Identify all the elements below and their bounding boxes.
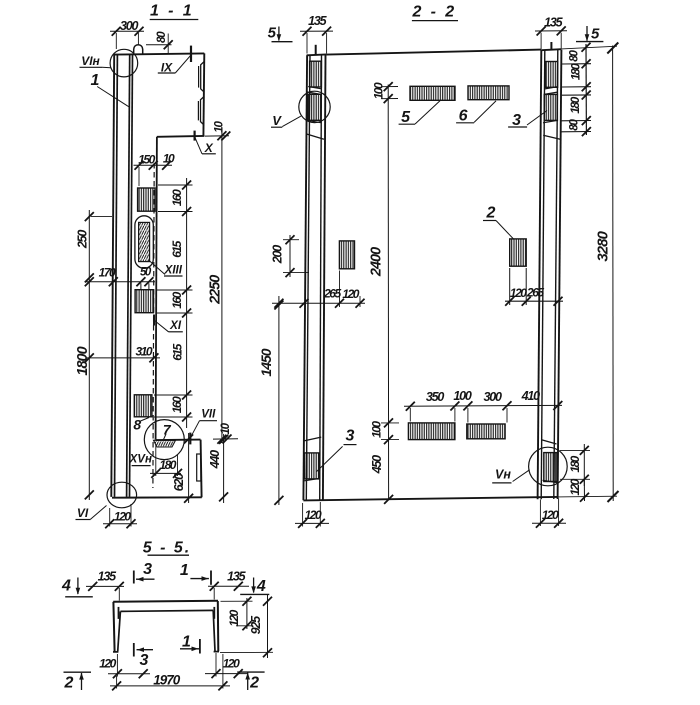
svg-text:6: 6 xyxy=(459,107,468,124)
svg-text:120: 120 xyxy=(342,287,359,301)
svg-text:1: 1 xyxy=(182,634,191,651)
svg-text:10: 10 xyxy=(214,121,226,133)
svg-text:120: 120 xyxy=(227,609,241,626)
svg-text:135: 135 xyxy=(544,16,564,30)
svg-text:1: 1 xyxy=(180,562,189,579)
svg-text:120: 120 xyxy=(568,478,582,495)
svg-text:10: 10 xyxy=(220,422,232,434)
svg-text:2400: 2400 xyxy=(369,247,385,277)
svg-text:1 - 1: 1 - 1 xyxy=(150,3,194,20)
svg-text:300: 300 xyxy=(483,390,502,404)
svg-text:1970: 1970 xyxy=(153,672,181,687)
svg-text:3: 3 xyxy=(143,561,152,578)
svg-text:615: 615 xyxy=(171,343,185,360)
svg-text:XIII: XIII xyxy=(164,265,183,277)
svg-text:2: 2 xyxy=(485,205,495,222)
svg-text:410: 410 xyxy=(521,389,541,403)
svg-text:3: 3 xyxy=(512,112,521,129)
svg-text:3: 3 xyxy=(346,428,355,445)
svg-text:4: 4 xyxy=(61,578,71,595)
svg-text:VII: VII xyxy=(201,409,216,421)
svg-text:160: 160 xyxy=(170,189,184,206)
svg-text:4: 4 xyxy=(256,578,266,595)
svg-text:80: 80 xyxy=(156,31,168,43)
svg-text:135: 135 xyxy=(227,570,247,584)
svg-text:180: 180 xyxy=(159,458,176,472)
svg-text:265: 265 xyxy=(323,287,341,301)
svg-text:120: 120 xyxy=(223,656,240,670)
svg-text:80: 80 xyxy=(569,119,581,131)
svg-text:120: 120 xyxy=(99,656,116,670)
svg-text:3280: 3280 xyxy=(594,231,611,262)
svg-text:120: 120 xyxy=(510,286,527,300)
svg-text:180: 180 xyxy=(568,96,582,113)
svg-text:V: V xyxy=(272,113,282,128)
svg-text:160: 160 xyxy=(170,396,184,413)
svg-text:180: 180 xyxy=(568,455,582,472)
svg-text:X: X xyxy=(204,141,214,155)
svg-text:7: 7 xyxy=(163,421,172,437)
svg-text:2: 2 xyxy=(249,675,259,692)
svg-text:250: 250 xyxy=(75,230,89,250)
svg-text:925: 925 xyxy=(249,615,263,635)
svg-text:200: 200 xyxy=(271,245,285,265)
svg-text:160: 160 xyxy=(170,291,184,308)
svg-text:5 - 5.: 5 - 5. xyxy=(143,540,191,557)
svg-text:5: 5 xyxy=(401,109,411,126)
svg-text:VI: VI xyxy=(77,506,89,520)
svg-text:170: 170 xyxy=(99,266,116,280)
svg-text:VIн: VIн xyxy=(81,54,100,68)
svg-text:1450: 1450 xyxy=(258,348,274,376)
svg-text:350: 350 xyxy=(426,390,445,404)
svg-text:135: 135 xyxy=(308,14,328,28)
svg-text:2250: 2250 xyxy=(207,275,223,305)
svg-text:120: 120 xyxy=(114,510,131,524)
svg-text:450: 450 xyxy=(370,455,384,475)
svg-text:100: 100 xyxy=(453,389,472,403)
svg-text:620: 620 xyxy=(172,473,186,492)
svg-text:8: 8 xyxy=(133,417,141,433)
svg-text:Vн: Vн xyxy=(495,468,511,482)
svg-text:XI: XI xyxy=(169,320,182,332)
svg-text:2: 2 xyxy=(64,675,74,692)
svg-text:5: 5 xyxy=(591,26,600,43)
svg-text:310: 310 xyxy=(136,344,153,358)
svg-text:440: 440 xyxy=(208,450,222,470)
svg-text:XVн: XVн xyxy=(129,454,152,466)
svg-text:265: 265 xyxy=(526,286,544,300)
svg-text:615: 615 xyxy=(170,240,184,257)
svg-text:135: 135 xyxy=(98,570,118,584)
svg-text:2 - 2: 2 - 2 xyxy=(411,4,456,21)
svg-text:180: 180 xyxy=(569,63,583,80)
svg-text:3: 3 xyxy=(140,652,149,669)
svg-text:80: 80 xyxy=(569,50,581,62)
svg-text:1: 1 xyxy=(91,72,100,89)
svg-text:5: 5 xyxy=(268,25,277,42)
svg-text:1800: 1800 xyxy=(75,346,91,375)
